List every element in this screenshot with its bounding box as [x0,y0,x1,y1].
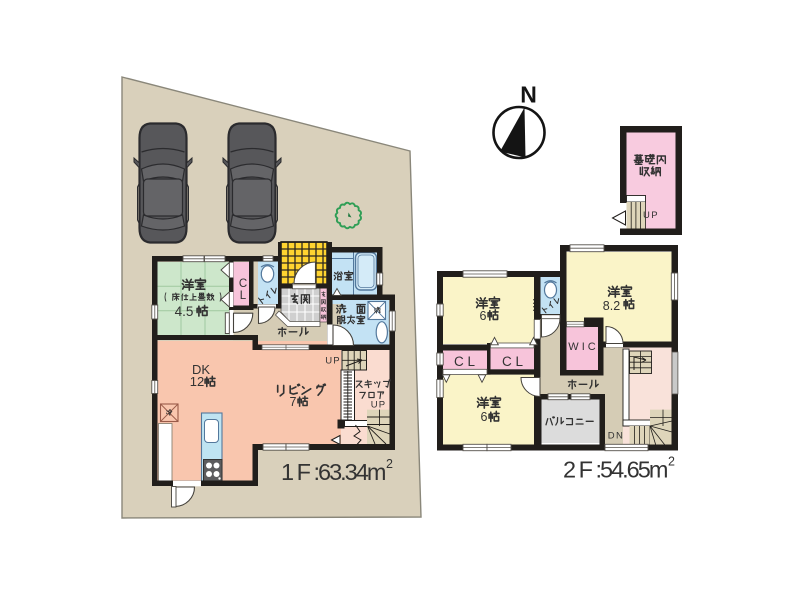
svg-text:C L: C L [454,354,476,369]
svg-text:UP: UP [325,356,341,367]
svg-text:1 F :63.34m: 1 F :63.34m [281,459,386,485]
svg-text:N: N [520,82,537,108]
svg-text:C: C [239,278,247,290]
svg-text:W I C: W I C [568,341,596,353]
svg-text:6: 6 [480,309,487,323]
svg-text:4.5: 4.5 [175,304,194,319]
svg-text:8.2: 8.2 [603,299,620,313]
svg-text:UP: UP [643,210,659,221]
svg-text:C L: C L [502,354,524,369]
svg-text:7: 7 [290,395,297,409]
svg-text:12: 12 [190,374,204,389]
svg-text:2 F :54.65m: 2 F :54.65m [563,457,668,483]
svg-text:6: 6 [481,410,488,424]
svg-text:L: L [240,290,247,302]
svg-text:UP: UP [371,400,387,411]
svg-text:DN: DN [608,431,625,442]
svg-text:2: 2 [386,457,393,471]
svg-text:2: 2 [668,455,675,469]
